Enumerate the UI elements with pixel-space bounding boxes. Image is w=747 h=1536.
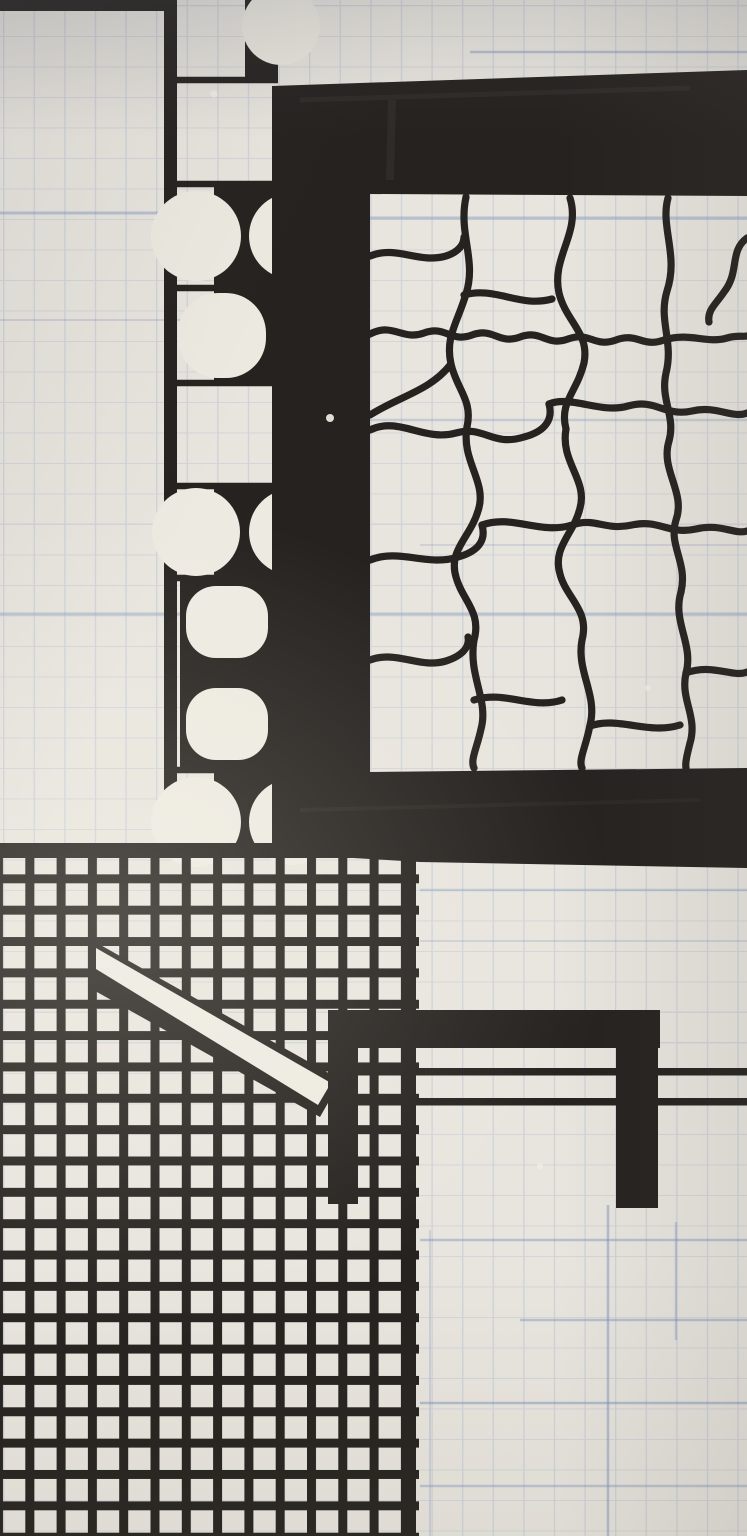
tile-grid-top-edge bbox=[0, 845, 419, 858]
strip-left-border bbox=[164, 0, 177, 852]
capsule-block-motif bbox=[180, 578, 278, 768]
top-border-line bbox=[0, 0, 170, 11]
tile-grid-right-edge bbox=[405, 845, 416, 1536]
capsule-motif-cell4 bbox=[178, 288, 278, 383]
mural-photo bbox=[0, 0, 747, 1536]
mural-artwork bbox=[0, 0, 747, 1536]
